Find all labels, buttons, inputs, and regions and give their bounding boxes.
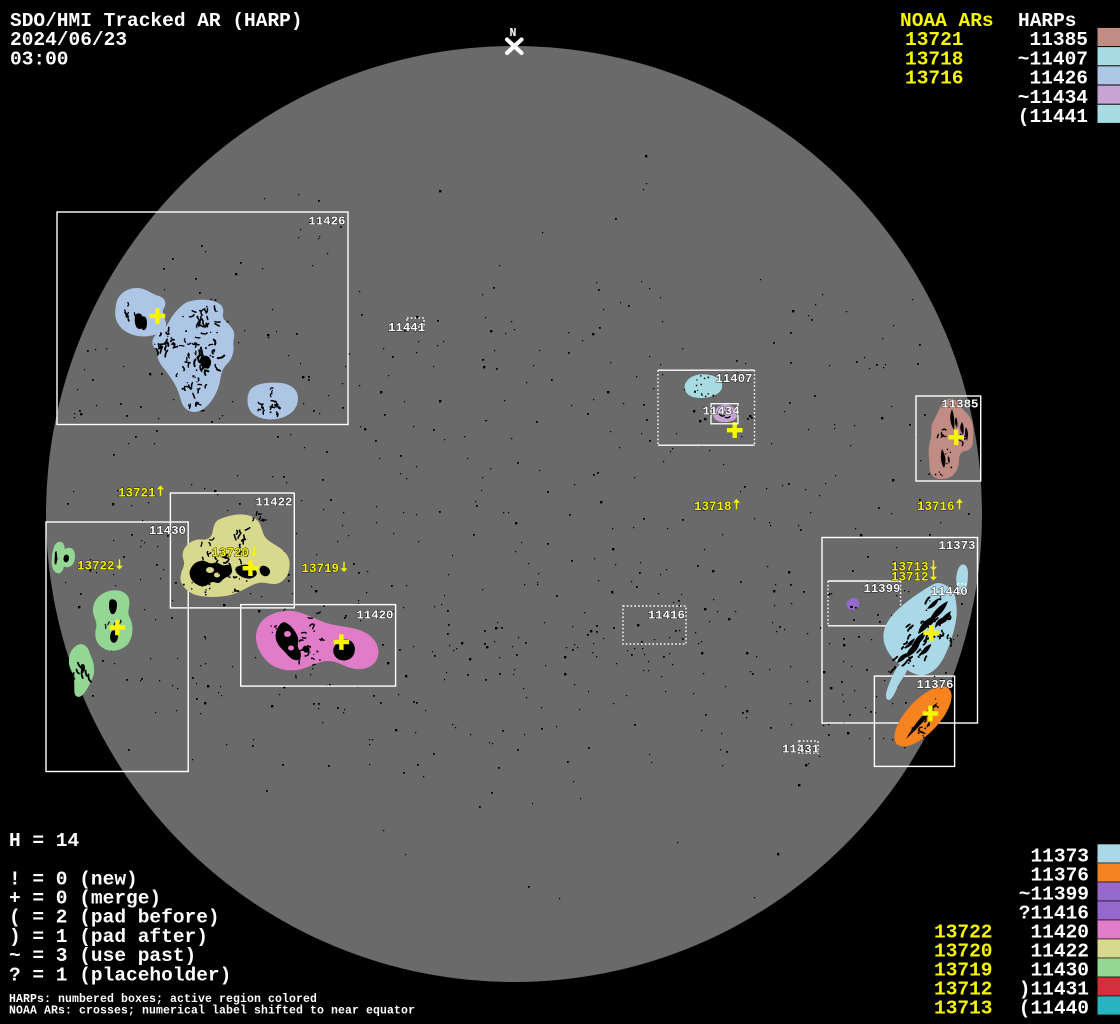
svg-text:13716: 13716 — [905, 68, 964, 90]
svg-text:11430: 11430 — [149, 524, 186, 538]
svg-text:13719: 13719 — [302, 562, 340, 576]
svg-text:11434: 11434 — [703, 405, 741, 419]
svg-text:11420: 11420 — [356, 609, 393, 623]
svg-text:13712: 13712 — [891, 571, 929, 585]
svg-text:11440: 11440 — [931, 585, 968, 599]
svg-text:11441: 11441 — [388, 321, 425, 335]
svg-text:N: N — [510, 27, 517, 40]
svg-text:11422: 11422 — [255, 496, 292, 510]
svg-text:(11440: (11440 — [1019, 998, 1089, 1020]
svg-text:13716: 13716 — [917, 500, 955, 514]
svg-text:13718: 13718 — [694, 500, 732, 514]
svg-text:11385: 11385 — [941, 398, 978, 412]
svg-text:11426: 11426 — [308, 215, 345, 229]
svg-text:11431: 11431 — [782, 743, 819, 757]
svg-text:13721: 13721 — [118, 487, 156, 501]
svg-text:03:00: 03:00 — [10, 48, 69, 70]
svg-text:13720: 13720 — [212, 547, 250, 561]
svg-text:(11441: (11441 — [1018, 106, 1088, 128]
svg-text:11376: 11376 — [916, 678, 953, 692]
svg-text:11407: 11407 — [715, 372, 752, 386]
svg-text:13713: 13713 — [934, 998, 993, 1020]
svg-text:13722: 13722 — [77, 560, 115, 574]
svg-text:11373: 11373 — [938, 539, 975, 553]
svg-text:11416: 11416 — [648, 609, 685, 623]
svg-text:H = 14: H = 14 — [9, 830, 80, 852]
svg-text:NOAA ARs: crosses; numerical l: NOAA ARs: crosses; numerical label shift… — [9, 1005, 415, 1018]
svg-text:? = 1 (placeholder): ? = 1 (placeholder) — [9, 964, 231, 986]
